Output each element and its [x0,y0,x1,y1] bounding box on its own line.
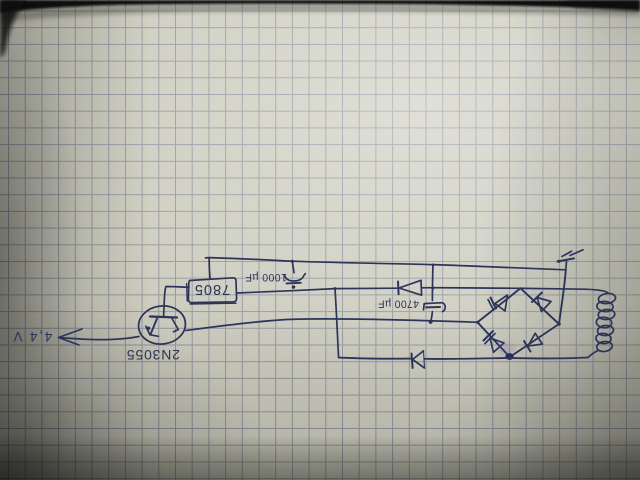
svg-text:2N3055: 2N3055 [126,347,180,363]
svg-text:7805: 7805 [194,281,230,297]
svg-text:4,4 V: 4,4 V [12,329,53,344]
